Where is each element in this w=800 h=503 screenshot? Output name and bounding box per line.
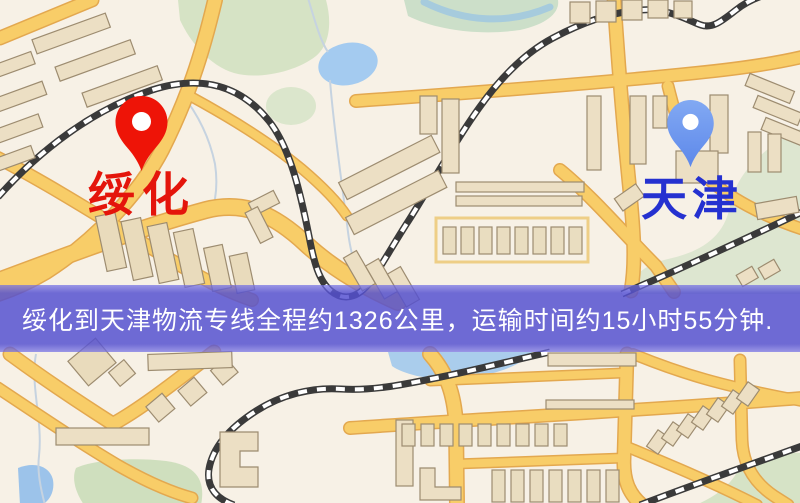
destination-pin-icon[interactable] (667, 100, 714, 168)
logistics-map-image: 绥化 天津 绥化到天津物流专线全程约1326公里，运输时间约15小时55分钟. (0, 0, 800, 503)
origin-city-label: 绥化 (88, 172, 196, 219)
route-info-banner: 绥化到天津物流专线全程约1326公里，运输时间约15小时55分钟. (0, 285, 800, 352)
origin-pin-icon[interactable] (115, 96, 168, 172)
destination-city-label: 天津 (641, 176, 743, 222)
route-summary-text: 绥化到天津物流专线全程约1326公里，运输时间约15小时55分钟. (0, 301, 773, 337)
street-map-canvas[interactable] (0, 0, 800, 503)
